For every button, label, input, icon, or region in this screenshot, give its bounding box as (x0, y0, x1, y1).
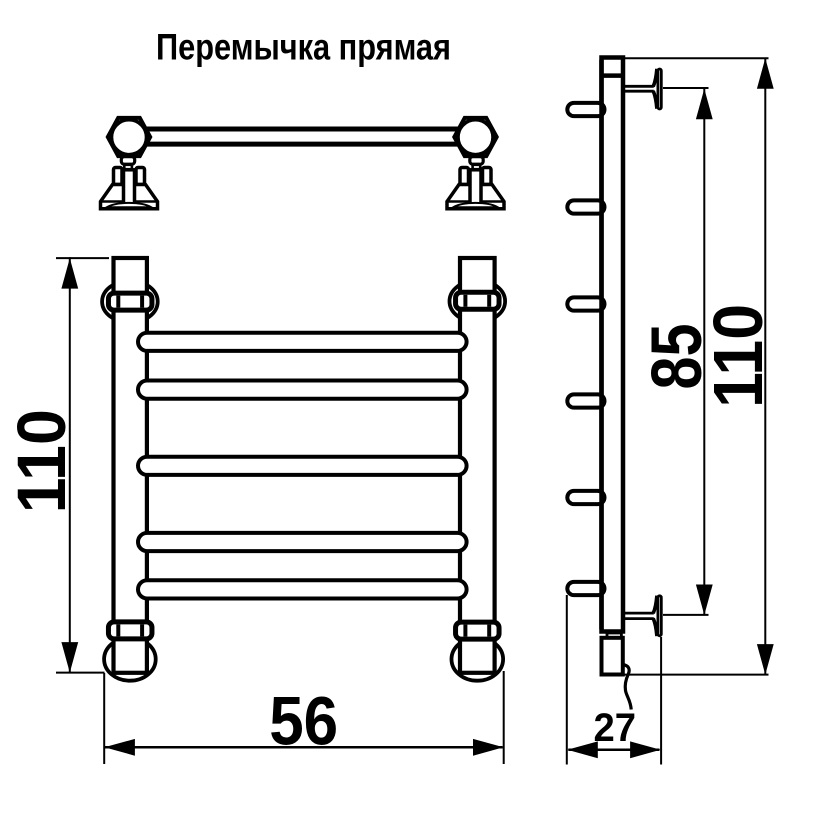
svg-text:Перемычка прямая: Перемычка прямая (156, 26, 451, 67)
svg-text:56: 56 (269, 683, 338, 760)
svg-text:110: 110 (699, 304, 777, 408)
svg-text:27: 27 (594, 706, 637, 750)
svg-text:110: 110 (3, 409, 80, 513)
